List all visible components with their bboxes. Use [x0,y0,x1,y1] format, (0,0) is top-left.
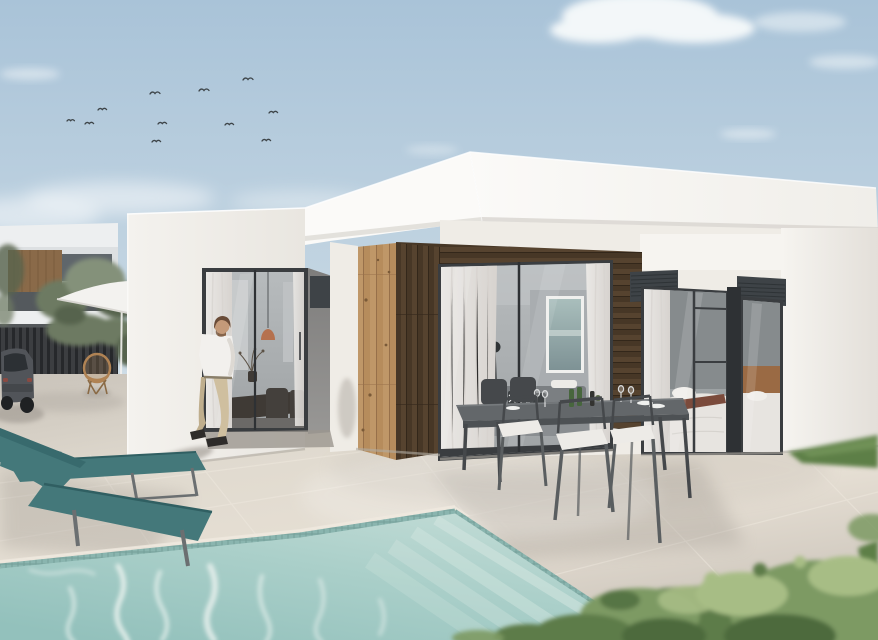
car-wheel [1,396,13,410]
wall-shadow [338,378,356,438]
wicker-chair [83,354,111,397]
right-wall [781,228,878,452]
villa-scene: Modern single-storey villa with private … [0,0,878,640]
car-rear-window [4,353,28,371]
wood-pillar-side [396,243,440,460]
wood-pillar-front [356,243,396,460]
car-taillight [3,378,8,382]
bedroom-corner-post [727,287,741,455]
wing-shutter-box [310,276,330,308]
bottle [569,389,574,407]
architectural-render: Modern single-storey villa with private … [0,0,878,640]
bedroom-soffit [640,234,786,270]
glass-bedroom [630,270,786,455]
